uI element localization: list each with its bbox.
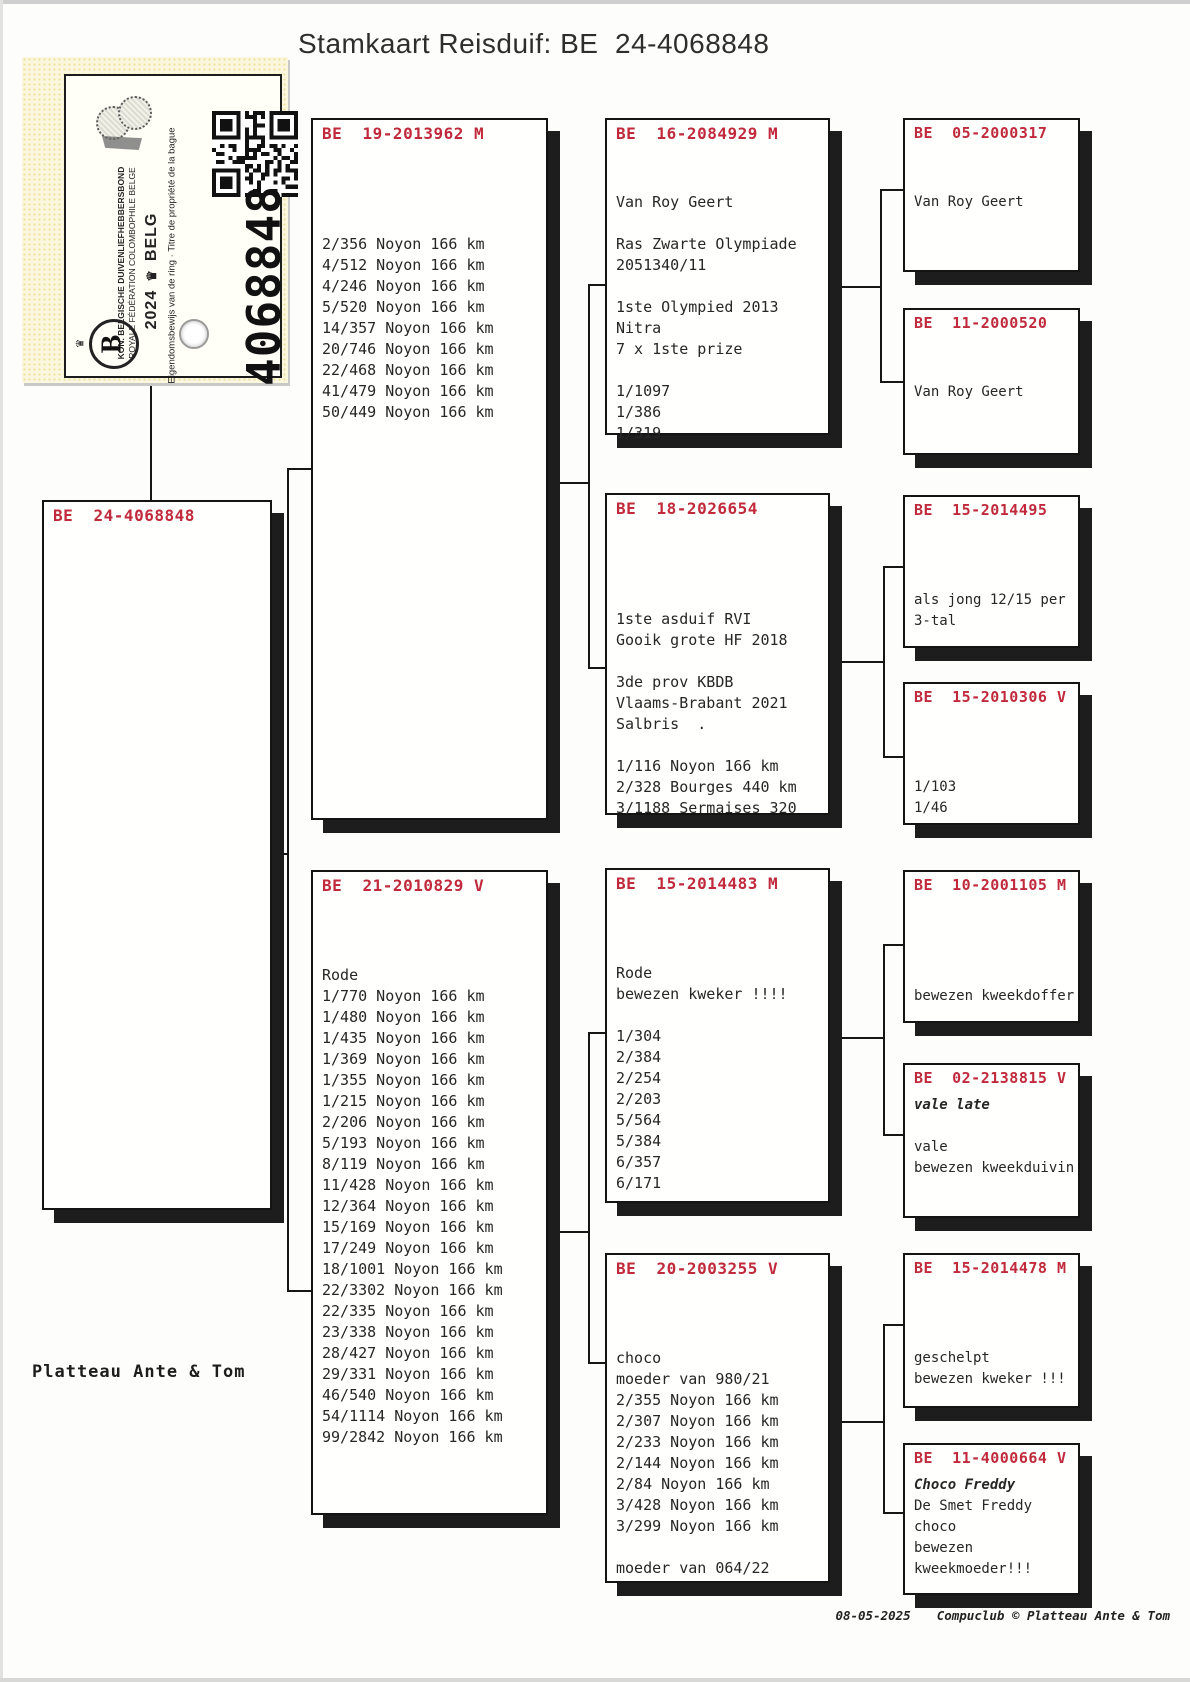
ring-number-header: BE 21-2010829 V [322,876,542,898]
pedigree-line [322,944,542,965]
pedigree-line: 22/3302 Noyon 166 km [322,1280,542,1301]
pedigree-line [616,276,824,297]
pedigree-line: bewezen kweker !!!! [616,984,824,1005]
pedigree-line: 2/307 Noyon 166 km [616,1411,824,1432]
pedigree-line [616,1327,824,1348]
connector-line [883,756,903,758]
pedigree-line: 5/520 Noyon 166 km [322,297,542,318]
pedigree-line: 2051340/11 [616,255,824,276]
connector-line [588,667,605,669]
pedigree-line: 2/356 Noyon 166 km [322,234,542,255]
ring-number-header: BE 20-2003255 V [616,1259,824,1281]
pedigree-box-greatgrandparent-7: BE 15-2014478 M geschelptbewezen kweker … [903,1253,1080,1408]
ring-year: 2024 [143,290,160,330]
pedigree-line [616,942,824,963]
pedigree-line: 2/84 Noyon 166 km [616,1474,824,1495]
pedigree-card-scan: Stamkaart Reisduif: BE 24-4068848 KON. B… [0,0,1190,1682]
box-body: Van Roy Geert [914,146,1074,213]
pedigree-line: 1ste asduif RVI [616,609,824,630]
pedigree-line: 28/427 Noyon 166 km [322,1343,542,1364]
pedigree-line: 5/384 [616,1131,824,1152]
pedigree-line: 1/1097 [616,381,824,402]
pedigree-line [914,756,1074,777]
ring-number-header: BE 05-2000317 [914,124,1074,146]
pedigree-line: 1/480 Noyon 166 km [322,1007,542,1028]
pedigree-box-mother: BE 21-2010829 V Rode1/770 Noyon 166 km1/… [311,870,548,1515]
connector-line [830,286,881,288]
connector-line [883,566,885,758]
pedigree-line: 5/564 [616,1110,824,1131]
pedigree-line [914,340,1074,361]
pedigree-line: moeder van 064/22 [616,1558,824,1579]
pedigree-line: moeder van 980/21 [616,1369,824,1390]
ring-number-large: 4068848 [237,202,291,386]
connector-line [883,944,903,946]
pedigree-box-father: BE 19-2013962 M 2/356 Noyon 166 km4/512 … [311,118,548,820]
pedigree-line [322,902,542,923]
ring-number-header: BE 15-2014483 M [616,874,824,896]
pedigree-line: bewezen kweker !!! [914,1369,1074,1390]
pedigree-line: 20/746 Noyon 166 km [322,339,542,360]
box-body: Rode1/770 Noyon 166 km1/480 Noyon 166 km… [322,898,542,1448]
pedigree-line: 22/335 Noyon 166 km [322,1301,542,1322]
pedigree-line: Ras Zwarte Olympiade [616,234,824,255]
pedigree-line [616,213,824,234]
box-body: 1/1031/46 [914,710,1074,819]
pedigree-line [616,525,824,546]
pedigree-line: 6/357 [616,1152,824,1173]
connector-line [830,1037,884,1039]
pedigree-line [914,171,1074,192]
scan-edge [0,0,1190,4]
box-body: Choco FreddyDe Smet Freddychocobewezenkw… [914,1471,1074,1580]
crown-icon: ♛ [144,261,159,290]
footer-date: 08-05-2025 [835,1608,910,1623]
hole-punch [179,319,209,349]
pedigree-line [616,921,824,942]
box-body: vale late valebewezen kweekduivin [914,1091,1074,1179]
box-body: 2/356 Noyon 166 km4/512 Noyon 166 km4/24… [322,146,542,423]
pedigree-line: geschelpt [914,1348,1074,1369]
box-body: 1ste asduif RVIGooik grote HF 2018 3de p… [616,521,824,819]
connector-line [588,284,590,669]
ring-number-header: BE 10-2001105 M [914,876,1074,898]
ring-number-header: BE 16-2084929 M [616,124,824,146]
pedigree-line: 5/193 Noyon 166 km [322,1133,542,1154]
pedigree-line [616,651,824,672]
pedigree-line: 4/512 Noyon 166 km [322,255,542,276]
ring-number-header: BE 15-2014495 [914,501,1074,523]
footer-credit: 08-05-2025Compuclub © Platteau Ante & To… [790,1608,1170,1623]
box-body: Van Roy Geert [914,336,1074,403]
ring-number-header: BE 18-2026654 [616,499,824,521]
connector-line [883,566,903,568]
ring-number-header: BE 02-2138815 V [914,1069,1074,1091]
connector-line [830,1421,884,1423]
pedigree-line [616,735,824,756]
certificate-card: KON. BELGISCHE DUIVENLIEFHEBBERSBOND ROY… [64,74,282,378]
pedigree-line [914,548,1074,569]
scan-edge [0,0,3,1682]
pedigree-line: 3de prov KBDB [616,672,824,693]
connector-line [287,468,311,470]
pedigree-line: kweekmoeder!!! [914,1559,1074,1580]
pedigree-line: 2/254 [616,1068,824,1089]
pedigree-line: 22/468 Noyon 166 km [322,360,542,381]
pedigree-line [914,923,1074,944]
pedigree-line: 50/449 Noyon 166 km [322,402,542,423]
pedigree-box-greatgrandparent-5: BE 10-2001105 M bewezen kweekdoffer [903,870,1080,1023]
pedigree-line [914,569,1074,590]
pedigree-line: 1/770 Noyon 166 km [322,986,542,1007]
pedigree-line [914,735,1074,756]
ring-number-header: BE 11-4000664 V [914,1449,1074,1471]
pedigree-line [322,213,542,234]
pedigree-line [914,527,1074,548]
pedigree-line: Vlaams-Brabant 2021 [616,693,824,714]
pedigree-line: vale late [914,1095,1074,1116]
pedigree-line [616,546,824,567]
pedigree-line: choco [616,1348,824,1369]
pedigree-line [322,923,542,944]
pedigree-line [616,1005,824,1026]
box-body: Van Roy Geert Ras Zwarte Olympiade205134… [616,146,824,444]
pedigree-line [914,714,1074,735]
pedigree-line: 1/386 [616,402,824,423]
pedigree-line: 3-tal [914,611,1074,632]
pedigree-line: 3/428 Noyon 166 km [616,1495,824,1516]
connector-line [588,1032,605,1034]
connector-line [880,381,903,383]
pedigree-line: 29/331 Noyon 166 km [322,1364,542,1385]
pedigree-line [616,171,824,192]
pedigree-line: 2/328 Bourges 440 km [616,777,824,798]
pedigree-line: 1/319 [616,423,824,444]
pedigree-line: Van Roy Geert [914,382,1074,403]
pedigree-line: 1/355 Noyon 166 km [322,1070,542,1091]
pedigree-line [616,1285,824,1306]
country-code: BELG [143,213,160,261]
pedigree-box-grandfather-paternal: BE 16-2084929 M Van Roy Geert Ras Zwarte… [605,118,830,435]
ring-number-header: BE 15-2010306 V [914,688,1074,710]
connector-line [880,189,882,383]
connector-line [548,482,589,484]
pedigree-line: 2/233 Noyon 166 km [616,1432,824,1453]
pedigree-line [914,1285,1074,1306]
pedigree-line: Salbris . [616,714,824,735]
pedigree-line: 17/249 Noyon 166 km [322,1238,542,1259]
pedigree-line: 1/103 [914,777,1074,798]
federation-stamp-icon [96,96,156,172]
pedigree-box-grandfather-maternal: BE 15-2014483 M Rodebewezen kweker !!!! … [605,868,830,1203]
pedigree-line [322,171,542,192]
pedigree-line: 1/304 [616,1026,824,1047]
pedigree-line: 2/355 Noyon 166 km [616,1390,824,1411]
crown-icon: ♛ [72,340,87,348]
owner-name: Platteau Ante & Tom [32,1362,245,1382]
pedigree-line: Rode [616,963,824,984]
federation-b-logo-icon: B ♛ [89,319,139,369]
pedigree-line: Rode [322,965,542,986]
pedigree-box-greatgrandparent-1: BE 05-2000317 Van Roy Geert [903,118,1080,272]
pedigree-line: 1/116 Noyon 166 km [616,756,824,777]
pedigree-line [616,588,824,609]
pedigree-line: bewezen [914,1538,1074,1559]
pedigree-line [616,1306,824,1327]
pedigree-line: 14/357 Noyon 166 km [322,318,542,339]
connector-line [287,1290,311,1292]
pedigree-box-greatgrandparent-6: BE 02-2138815 V vale late valebewezen kw… [903,1063,1080,1218]
pedigree-line: 8/119 Noyon 166 km [322,1154,542,1175]
connector-line [272,853,288,855]
pedigree-line: 54/1114 Noyon 166 km [322,1406,542,1427]
pedigree-box-grandmother-maternal: BE 20-2003255 V chocomoeder van 980/212/… [605,1253,830,1583]
pedigree-line: 6/171 [616,1173,824,1194]
pedigree-line: 2/203 [616,1089,824,1110]
connector-line [880,189,903,191]
pedigree-line [616,360,824,381]
ring-number-header: BE 24-4068848 [53,506,266,528]
pedigree-line [616,567,824,588]
year-country-line: 2024♛BELG [143,181,161,361]
qr-code-icon [212,111,298,197]
logo-letter: B [96,335,128,354]
connector-line [883,944,885,1136]
pedigree-line: als jong 12/15 per [914,590,1074,611]
pedigree-line: 41/479 Noyon 166 km [322,381,542,402]
pedigree-line: 18/1001 Noyon 166 km [322,1259,542,1280]
pedigree-line [914,150,1074,171]
connector-line [883,1512,903,1514]
pedigree-line: 1/215 Noyon 166 km [322,1091,542,1112]
pedigree-line: 7 x 1ste prize [616,339,824,360]
box-body: chocomoeder van 980/212/355 Noyon 166 km… [616,1281,824,1579]
connector-line [883,1134,903,1136]
pedigree-line: 11/428 Noyon 166 km [322,1175,542,1196]
pedigree-box-greatgrandparent-3: BE 15-2014495 als jong 12/15 per3-tal [903,495,1080,648]
connector-line [588,1362,605,1364]
pedigree-line: 2/384 [616,1047,824,1068]
pedigree-box-greatgrandparent-4: BE 15-2010306 V 1/1031/46 [903,682,1080,825]
pedigree-line: Choco Freddy [914,1475,1074,1496]
pedigree-line: Van Roy Geert [616,192,824,213]
connector-line [548,1231,589,1233]
pedigree-line: 2/206 Noyon 166 km [322,1112,542,1133]
page-title: Stamkaart Reisduif: BE 24-4068848 [298,28,769,60]
connector-line [150,383,152,500]
pedigree-line [616,1537,824,1558]
connector-line [588,1032,590,1364]
pedigree-line: Gooik grote HF 2018 [616,630,824,651]
pedigree-line [322,150,542,171]
ring-number-header: BE 11-2000520 [914,314,1074,336]
pedigree-line: 2/144 Noyon 166 km [616,1453,824,1474]
box-body: Rodebewezen kweker !!!! 1/3042/3842/2542… [616,896,824,1194]
pedigree-line [914,965,1074,986]
pedigree-line: 99/2842 Noyon 166 km [322,1427,542,1448]
footer-copyright: Compuclub © Platteau Ante & Tom [937,1608,1170,1623]
connector-line [883,1324,903,1326]
pedigree-line: 1/369 Noyon 166 km [322,1049,542,1070]
ownership-title-line: Eigendomsbewijs van de ring · Titre de p… [167,110,178,402]
pedigree-box-greatgrandparent-2: BE 11-2000520 Van Roy Geert [903,308,1080,455]
ring-number-header: BE 19-2013962 M [322,124,542,146]
pedigree-line: 4/246 Noyon 166 km [322,276,542,297]
pedigree-line [914,944,1074,965]
pedigree-line [914,361,1074,382]
pedigree-line: 1/46 [914,798,1074,819]
pedigree-box-grandmother-paternal: BE 18-2026654 1ste asduif RVIGooik grote… [605,493,830,815]
pedigree-line: 46/540 Noyon 166 km [322,1385,542,1406]
box-body [53,528,266,532]
scan-edge [0,1678,1190,1682]
box-body: als jong 12/15 per3-tal [914,523,1074,632]
connector-line [883,1324,885,1514]
pedigree-line [914,1306,1074,1327]
globe-icon [118,96,152,130]
pedigree-box-subject: BE 24-4068848 [42,500,272,1210]
pedigree-line: 15/169 Noyon 166 km [322,1217,542,1238]
ring-number-header: BE 15-2014478 M [914,1259,1074,1281]
connector-line [830,661,884,663]
ring-ownership-certificate: KON. BELGISCHE DUIVENLIEFHEBBERSBOND ROY… [22,57,288,383]
pedigree-line [914,1116,1074,1137]
pedigree-line: 23/338 Noyon 166 km [322,1322,542,1343]
pedigree-line: bewezen kweekduivin [914,1158,1074,1179]
pedigree-line [914,902,1074,923]
pedigree-line: choco [914,1517,1074,1538]
connector-line [588,284,605,286]
pedigree-line [322,192,542,213]
pedigree-line: 1/435 Noyon 166 km [322,1028,542,1049]
pedigree-line: bewezen kweekdoffer [914,986,1074,1007]
pedigree-line [616,900,824,921]
pedigree-line: 1ste Olympied 2013 [616,297,824,318]
connector-line [287,468,289,1292]
pedigree-box-greatgrandparent-8: BE 11-4000664 V Choco FreddyDe Smet Fred… [903,1443,1080,1595]
pedigree-line: 12/364 Noyon 166 km [322,1196,542,1217]
pedigree-line: 3/1188 Sermaises 320 [616,798,824,819]
pedigree-line: Van Roy Geert [914,192,1074,213]
box-body: bewezen kweekdoffer [914,898,1074,1007]
pedigree-line: 3/299 Noyon 166 km [616,1516,824,1537]
pedigree-line: vale [914,1137,1074,1158]
box-body: geschelptbewezen kweker !!! [914,1281,1074,1390]
pedigree-line [616,150,824,171]
pedigree-line [914,1327,1074,1348]
pedigree-line: De Smet Freddy [914,1496,1074,1517]
pedigree-line: Nitra [616,318,824,339]
ribbon-icon [102,136,142,150]
